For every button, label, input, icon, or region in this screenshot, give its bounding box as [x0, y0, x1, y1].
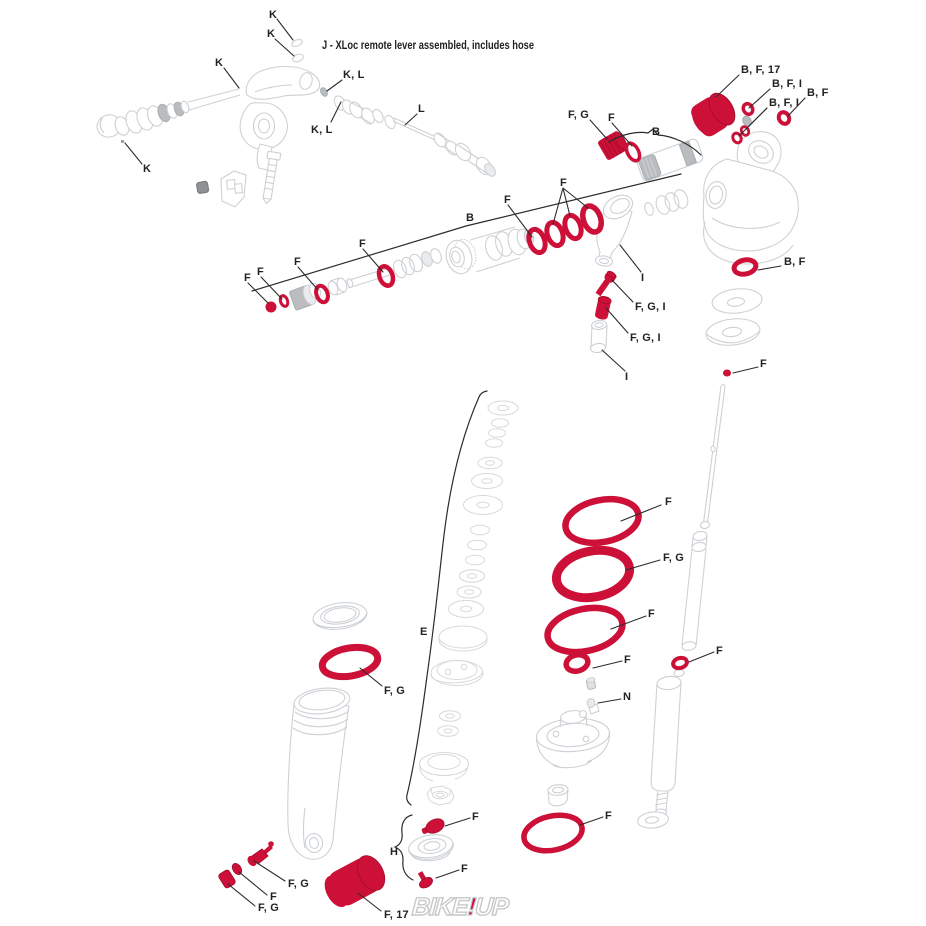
- part-label: K: [215, 57, 223, 69]
- part-label: F, G: [288, 878, 309, 890]
- watermark-right: UP: [474, 893, 509, 921]
- part-label: F, 17: [384, 909, 409, 921]
- part-label: F, G, I: [635, 301, 666, 313]
- part-label: K: [269, 9, 277, 21]
- part-label: B, F, 17: [741, 64, 781, 76]
- part-label: K: [143, 163, 151, 175]
- air-valve-red: [246, 841, 274, 868]
- part-label: F: [461, 863, 468, 875]
- part-label: F: [760, 358, 767, 370]
- diagram-canvas: J - XLoc remote lever assembled, include…: [0, 0, 926, 926]
- bracket-E: [407, 391, 487, 805]
- part-label: B: [466, 212, 474, 224]
- bikeup-watermark: BIKE!UP: [411, 893, 509, 922]
- part-label: N: [623, 691, 631, 703]
- remote-lever-assembly-art: [94, 38, 498, 207]
- part-label: F: [560, 177, 567, 189]
- leader-line: [277, 19, 293, 40]
- part-label: B, F, I: [769, 97, 799, 109]
- leader-line: [749, 89, 770, 108]
- part-label: F: [716, 645, 723, 657]
- leader-line: [716, 75, 739, 97]
- part-label: K, L: [311, 124, 333, 136]
- cartridge-body-art: [636, 138, 704, 182]
- part-label: F: [624, 654, 631, 666]
- part-label: H: [390, 846, 398, 858]
- part-label: F: [648, 608, 655, 620]
- part-label: F: [257, 266, 264, 278]
- leader-line: [358, 893, 381, 911]
- air-can-art: [288, 599, 369, 859]
- leader-line: [275, 39, 294, 56]
- leader-line: [553, 188, 563, 224]
- part-label: F, G: [384, 685, 405, 697]
- leader-line: [620, 245, 641, 272]
- pin-red: [414, 869, 434, 890]
- part-label: B: [652, 126, 660, 138]
- leader-line: [261, 277, 282, 299]
- bottom-cap-red: [319, 851, 390, 912]
- leader-line: [445, 818, 470, 826]
- part-label: F: [472, 811, 479, 823]
- part-label: F, G, I: [630, 332, 661, 344]
- part-label: B, F: [784, 256, 806, 268]
- leader-line: [254, 861, 285, 881]
- leader-line: [125, 143, 142, 164]
- part-label: E: [420, 626, 428, 638]
- part-label: I: [641, 272, 644, 284]
- valve-body-red: [594, 295, 611, 320]
- part-label: F: [244, 272, 251, 284]
- leader-line: [758, 266, 781, 270]
- leader-line: [239, 872, 267, 895]
- valve-bolt-red: [593, 270, 617, 298]
- part-label: I: [625, 371, 628, 383]
- leader-line: [224, 68, 239, 88]
- leader-line: [590, 120, 607, 139]
- part-label: B, F, I: [772, 78, 802, 90]
- leader-line: [689, 652, 714, 662]
- leader-line: [602, 350, 625, 371]
- leader-line: [593, 661, 622, 668]
- part-label: K: [267, 28, 275, 40]
- leader-line: [248, 283, 268, 303]
- part-label: F, G: [258, 902, 279, 914]
- leader-line: [405, 114, 417, 125]
- shock-head-art: [703, 115, 798, 264]
- part-label: F, G: [663, 552, 684, 564]
- part-label: K, L: [343, 69, 365, 81]
- exploded-parts-diagram: J - XLoc remote lever assembled, include…: [0, 0, 926, 926]
- part-labels: KKKK, LK, LLKF, GFBB, F, 17B, F, IB, FB,…: [125, 9, 829, 921]
- leader-line: [611, 616, 646, 629]
- leader-line: [598, 699, 621, 703]
- leader-line: [733, 367, 758, 373]
- shim-stack-art: [420, 401, 519, 805]
- part-label: F: [608, 112, 615, 124]
- part-label: F: [359, 238, 366, 250]
- knurled-cap-red: [597, 129, 630, 161]
- diagram-title: J - XLoc remote lever assembled, include…: [322, 40, 534, 52]
- part-label: F: [665, 496, 672, 508]
- part-label: F: [605, 810, 612, 822]
- part-label: F: [294, 256, 301, 268]
- leader-line: [612, 280, 633, 302]
- leader-line: [436, 870, 459, 878]
- watermark-left: BIKE: [411, 893, 469, 921]
- leader-line: [327, 80, 342, 91]
- leader-line: [228, 884, 255, 906]
- top-cap-red: [686, 89, 740, 141]
- leader-line: [580, 817, 603, 825]
- leader-line: [606, 308, 628, 333]
- part-label: B, F: [807, 87, 829, 99]
- part-label: F, G: [568, 109, 589, 121]
- part-label: F: [504, 194, 511, 206]
- part-label: L: [418, 103, 425, 115]
- head-washers-art: [705, 286, 763, 347]
